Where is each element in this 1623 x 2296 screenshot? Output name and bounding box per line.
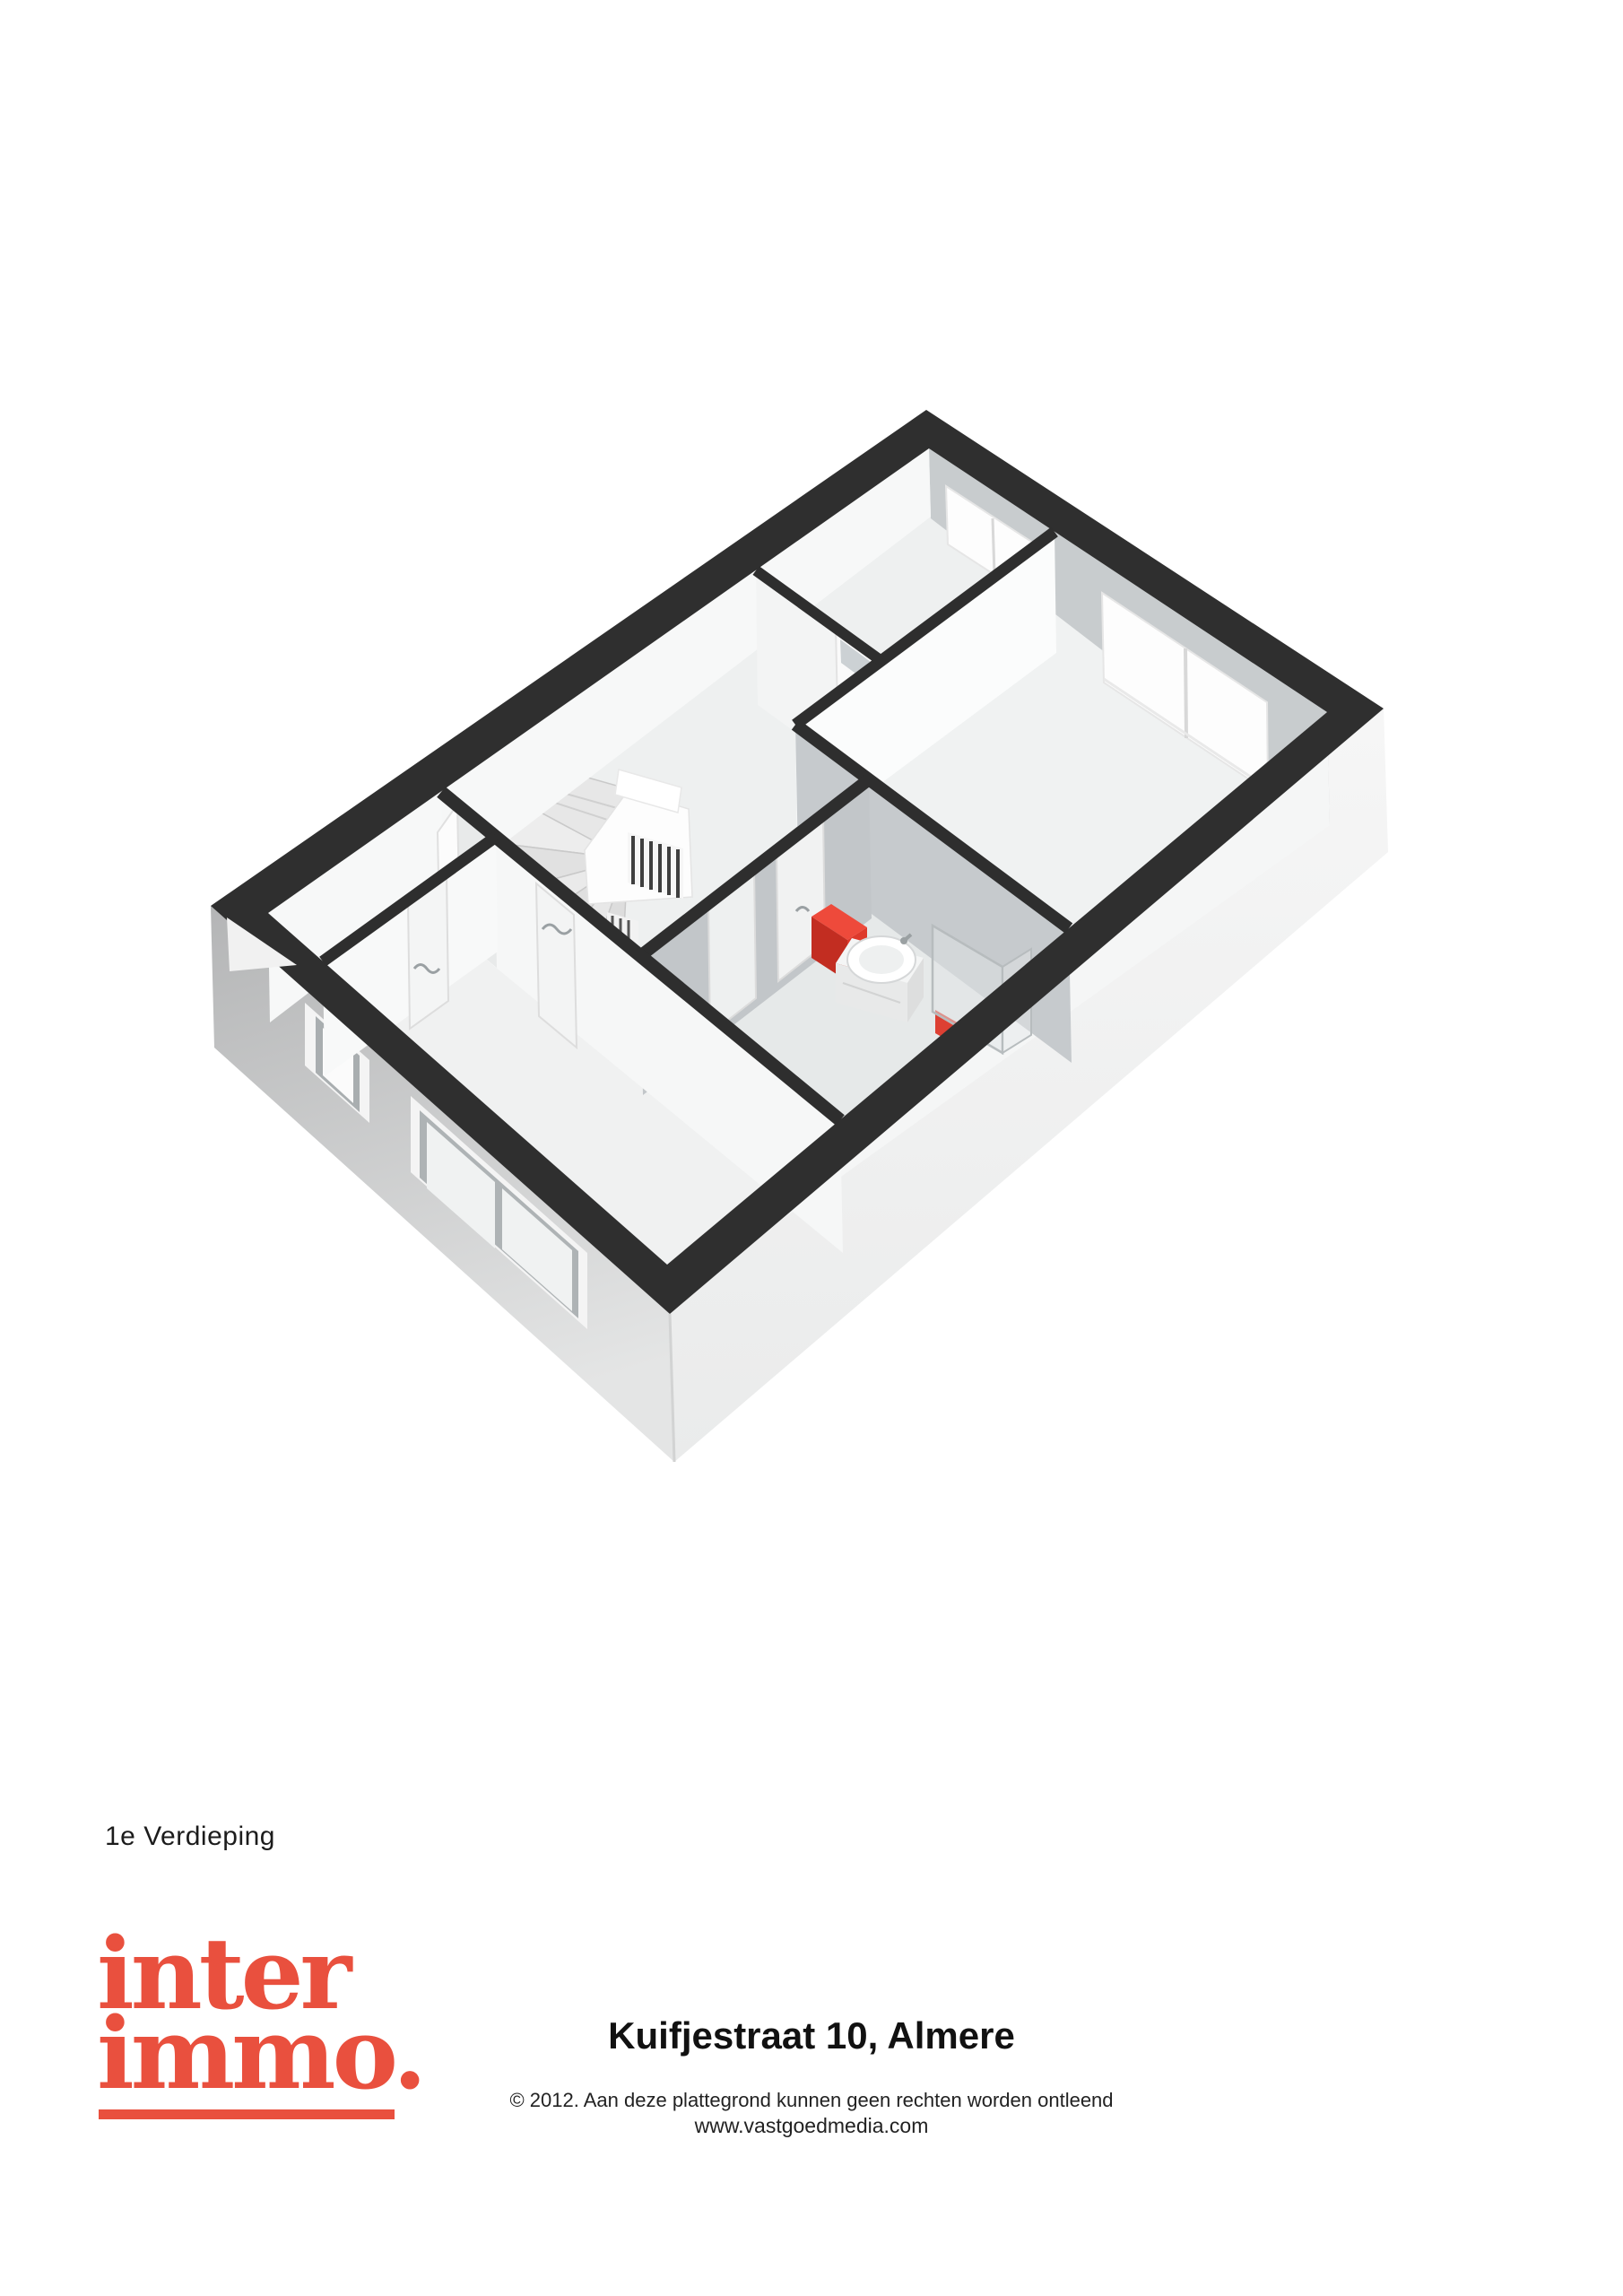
copyright-text: © 2012. Aan deze plattegrond kunnen geen… (0, 2089, 1623, 2112)
floorplan-page: 1e Verdieping inter immo. Kuifjestraat 1… (0, 0, 1623, 2296)
floor-label: 1e Verdieping (105, 1822, 275, 1852)
website-text: www.vastgoedmedia.com (0, 2114, 1623, 2138)
address-title: Kuifjestraat 10, Almere (0, 2014, 1623, 2057)
